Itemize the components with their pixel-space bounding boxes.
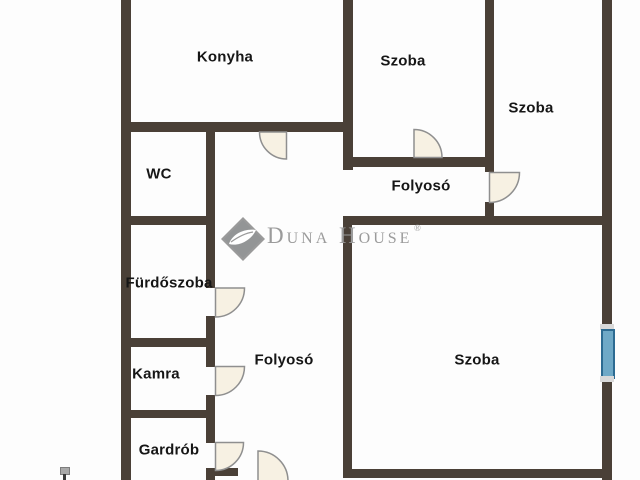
room-label-wc: WC <box>146 166 171 183</box>
floor-plan: Konyha Szoba Szoba WC Folyosó Fürdőszoba… <box>0 0 640 480</box>
room-label-szoba-middle: Szoba <box>380 53 425 70</box>
room-label-konyha: Konyha <box>197 49 253 66</box>
right-szoba-door-icon <box>490 173 520 203</box>
north-marker-icon <box>60 466 69 480</box>
room-label-folyoso-upper: Folyosó <box>392 178 451 195</box>
marker-stem <box>63 474 66 480</box>
kamra-door-icon <box>216 367 245 396</box>
watermark-duna-house: Duna House ® <box>218 215 428 265</box>
room-label-szoba-large: Szoba <box>454 352 499 369</box>
konyha-door-icon <box>260 132 287 159</box>
watermark-brand-text: Duna House <box>267 223 412 249</box>
furdoszoba-door-icon <box>216 288 245 317</box>
middle-szoba-door-icon <box>414 130 442 158</box>
watermark-registered-icon: ® <box>414 223 421 233</box>
room-label-szoba-right: Szoba <box>508 100 553 117</box>
gardrob-door-icon <box>216 443 244 471</box>
entrance-door-icon <box>258 451 288 480</box>
room-label-folyoso-lower: Folyosó <box>255 352 314 369</box>
room-label-furdoszoba: Fürdőszoba <box>126 275 213 292</box>
room-label-gardrob: Gardrób <box>139 442 200 459</box>
duna-house-diamond-icon <box>218 215 266 265</box>
window-frame-cap-bottom <box>600 376 614 382</box>
room-label-kamra: Kamra <box>132 366 180 383</box>
window-icon <box>601 329 615 379</box>
